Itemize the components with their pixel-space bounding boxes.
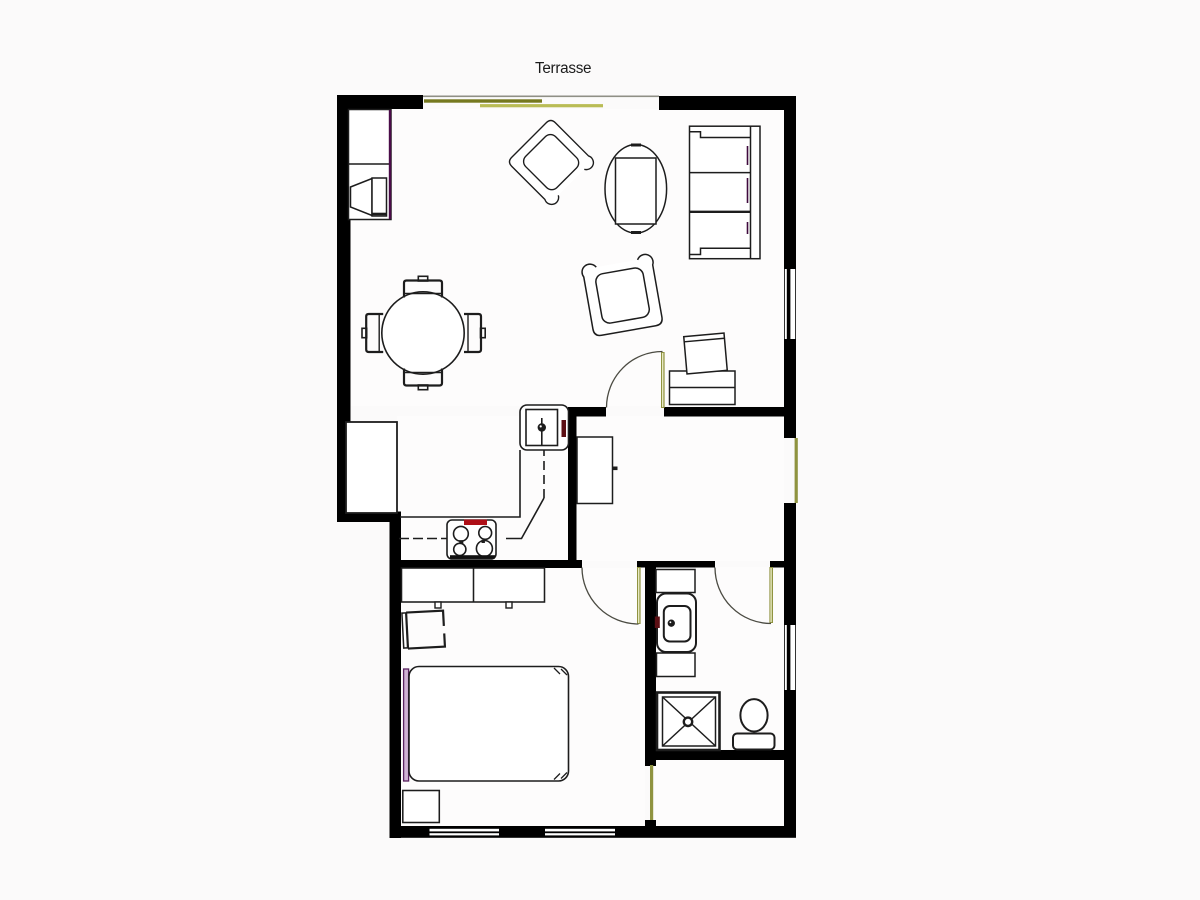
- svg-text:Terrasse: Terrasse: [535, 60, 591, 77]
